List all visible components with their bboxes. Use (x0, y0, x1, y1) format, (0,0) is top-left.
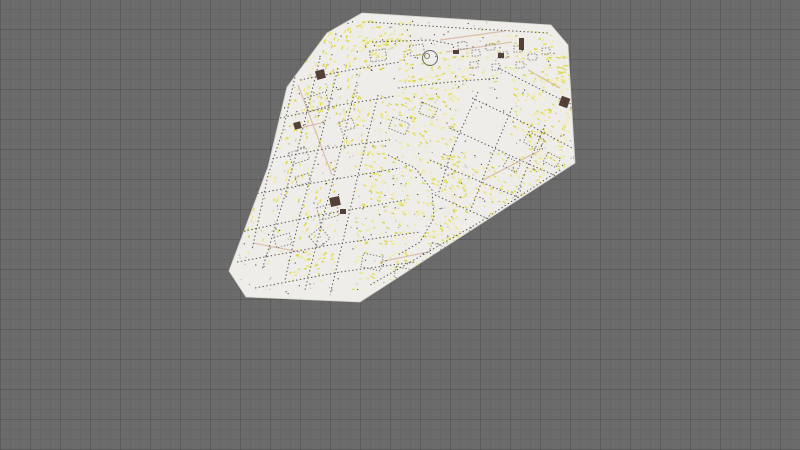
cad-viewport-canvas[interactable] (0, 0, 800, 450)
site-plan-map[interactable] (0, 0, 800, 450)
